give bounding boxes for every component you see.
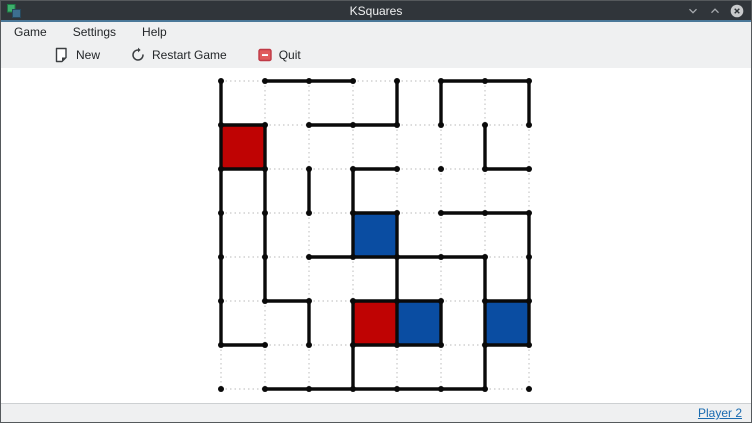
- new-button-label: New: [76, 48, 100, 62]
- menu-help[interactable]: Help: [133, 23, 176, 41]
- menu-settings[interactable]: Settings: [64, 23, 125, 41]
- maximize-icon[interactable]: [707, 3, 723, 19]
- restart-icon: [130, 47, 146, 63]
- minimize-icon[interactable]: [685, 3, 701, 19]
- quit-button[interactable]: Quit: [250, 44, 308, 66]
- restart-game-button-label: Restart Game: [152, 48, 227, 62]
- quit-button-label: Quit: [279, 48, 301, 62]
- ksquares-window: KSquares Game Settings Help: [0, 0, 752, 423]
- close-icon[interactable]: [729, 3, 745, 19]
- restart-game-button[interactable]: Restart Game: [123, 44, 234, 66]
- toolbar: New Restart Game Quit: [1, 42, 751, 68]
- titlebar[interactable]: KSquares: [1, 1, 751, 22]
- status-bar: Player 2: [1, 403, 751, 422]
- game-area: [1, 68, 751, 403]
- ksquares-app-icon: [7, 4, 21, 18]
- current-player-label: Player 2: [698, 406, 742, 420]
- quit-icon: [257, 47, 273, 63]
- window-title: KSquares: [1, 4, 751, 18]
- new-button[interactable]: New: [47, 44, 107, 66]
- window-controls: [685, 3, 751, 19]
- menu-game[interactable]: Game: [5, 23, 56, 41]
- new-document-icon: [54, 47, 70, 63]
- menu-bar: Game Settings Help: [1, 22, 751, 42]
- board-svg[interactable]: [213, 73, 537, 397]
